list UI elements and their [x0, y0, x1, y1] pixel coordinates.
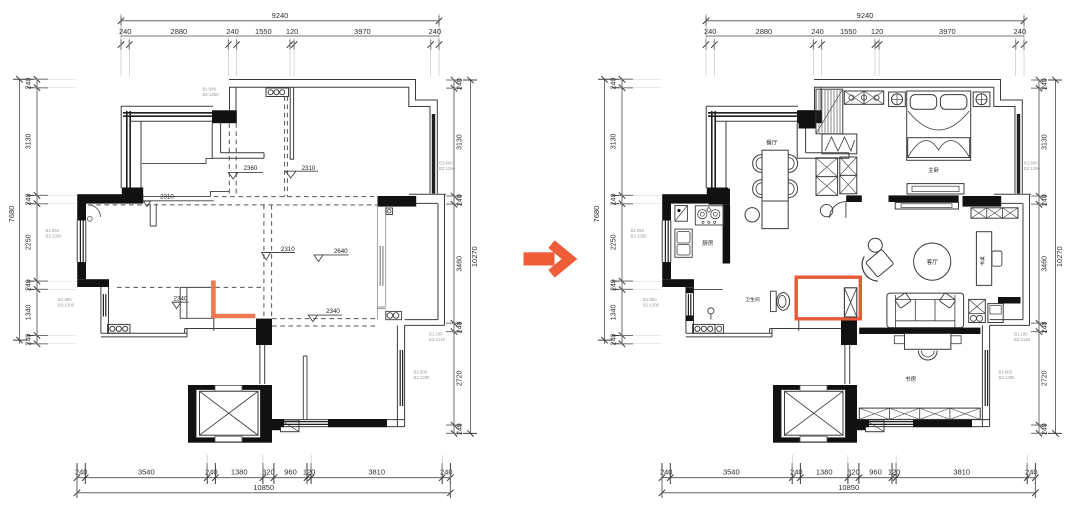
- svg-text:厨房: 厨房: [702, 239, 714, 247]
- svg-text:2640: 2640: [334, 248, 348, 255]
- svg-text:B2:1350: B2:1350: [203, 92, 220, 97]
- svg-text:2340: 2340: [174, 295, 188, 302]
- svg-text:餐厅: 餐厅: [766, 138, 778, 146]
- svg-text:B1:940: B1:940: [203, 87, 217, 92]
- svg-text:客厅: 客厅: [927, 258, 939, 266]
- svg-text:2310: 2310: [160, 194, 174, 201]
- svg-text:2310: 2310: [281, 246, 295, 253]
- svg-text:书房: 书房: [905, 375, 917, 383]
- svg-text:书桌: 书桌: [979, 256, 986, 266]
- svg-text:卫生间: 卫生间: [745, 296, 760, 303]
- svg-text:2360: 2360: [244, 165, 258, 172]
- svg-text:主卧: 主卧: [928, 166, 940, 174]
- svg-text:2340: 2340: [326, 308, 340, 315]
